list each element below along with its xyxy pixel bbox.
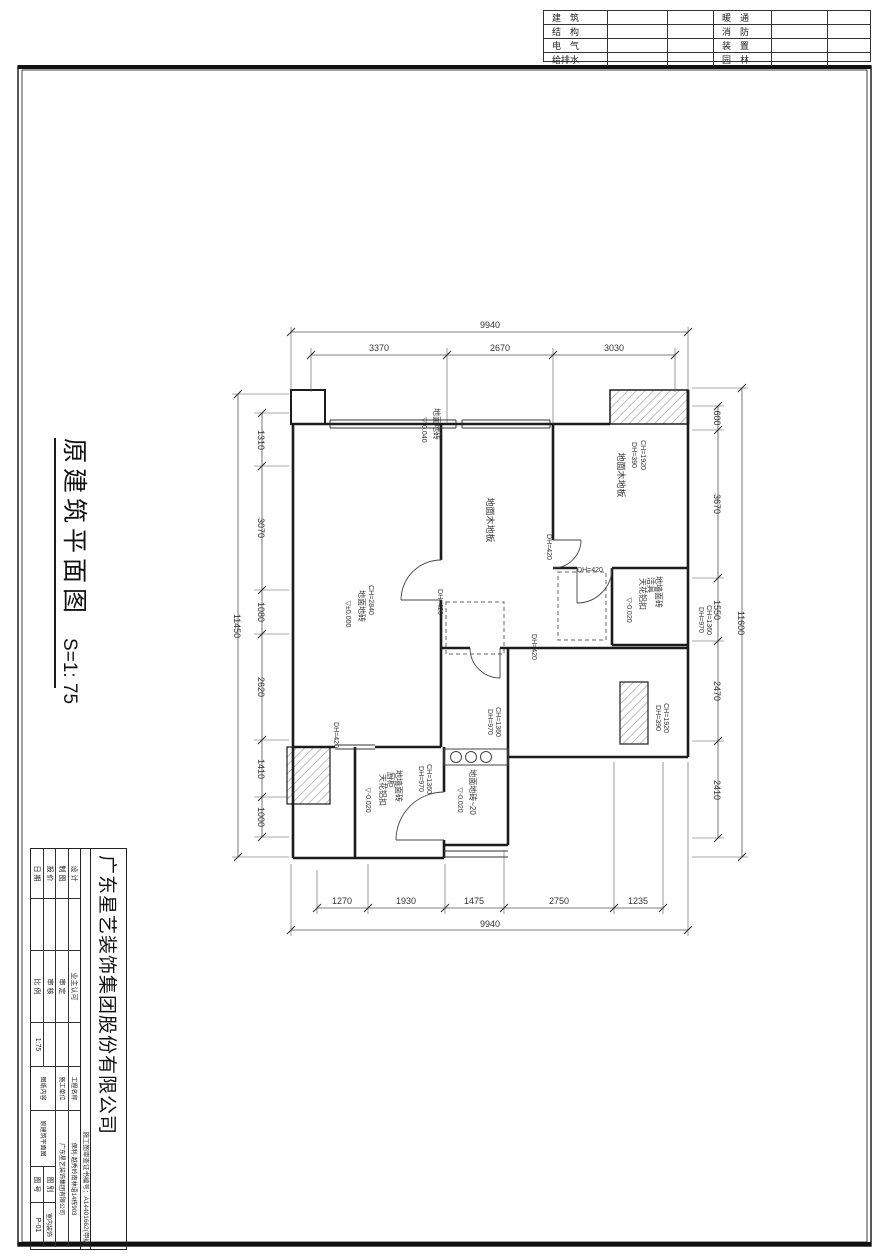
height-note: DH=420 [436, 589, 443, 615]
height-note: DH=970 [417, 766, 424, 792]
height-note: DH=420 [545, 534, 552, 560]
room-finish-label: 天花铝扣 [378, 774, 388, 806]
height-note: DH=420 [530, 634, 537, 660]
height-note: DH=420 [332, 722, 339, 748]
owner-approval-cell [68, 1023, 80, 1067]
room-finish-label: 地面地砖~20 [468, 769, 478, 815]
dim-top-total: 9940 [480, 320, 500, 330]
dashed-outlines [446, 572, 606, 654]
quote-signature-cell [43, 899, 55, 951]
dim-top: 2670 [490, 343, 510, 353]
sheet-title: 原建筑平面图 S=1: 75 [54, 438, 98, 688]
room-finish-label: 天花铝扣 [638, 578, 648, 610]
sheet-border [18, 66, 871, 1246]
discipline-blank-cell [608, 11, 668, 25]
dim-bottom: 1270 [332, 896, 352, 906]
height-note: DH=420 [577, 567, 603, 574]
project-name-value: 保利·越秀岭南林语14栋903 [68, 1111, 80, 1247]
discipline-blank-cell [828, 39, 870, 53]
dim-left: 1000 [256, 807, 266, 827]
stove-burners [444, 749, 508, 765]
height-note: CH=1920 [639, 440, 646, 470]
shaft-hatch [620, 682, 648, 744]
discipline-blank-cell [668, 11, 714, 25]
discipline-label: 结 构 [544, 25, 608, 39]
dim-left: 1310 [256, 430, 266, 450]
dim-right: 1550 [712, 600, 722, 620]
level-mark: ▽-0.020 [625, 597, 632, 622]
discipline-blank-cell [828, 53, 870, 66]
dim-right: 2470 [712, 681, 722, 701]
height-note: DH=390 [630, 442, 637, 468]
builder-value: 广东星艺装饰集团有限公司 [56, 1111, 68, 1247]
balcony-hatch [610, 390, 688, 424]
scale-label: 比 例 [31, 951, 43, 1023]
dim-right: 2410 [712, 780, 722, 800]
dim-top: 3370 [369, 343, 389, 353]
design-signature-cell [68, 899, 80, 951]
room-finish-label: 地面木地板 [616, 452, 627, 497]
scale-value: 1:75 [31, 1023, 43, 1067]
dim-left: 3070 [256, 518, 266, 538]
height-note: CH=1360 [425, 764, 432, 794]
dim-bottom: 1475 [464, 896, 484, 906]
sheet-title-text: 原建筑平面图 [58, 438, 94, 618]
owner-approval-label: 业主认可 [68, 951, 80, 1023]
dim-top: 3030 [604, 343, 624, 353]
height-note: CH=1360 [705, 605, 712, 635]
discipline-label: 暖 通 [714, 11, 772, 25]
date-label: 日 期 [31, 849, 43, 899]
dim-left: 1410 [256, 759, 266, 779]
room-finish-label: 地面木地板 [485, 497, 496, 542]
dim-bottom: 1930 [396, 896, 416, 906]
discipline-table: 建 筑 暖 通 结 构 消 防 电 气 装 置 给排水 园 [543, 10, 871, 62]
height-note: CH=1920 [662, 703, 669, 733]
company-band: 广东星艺装饰集团股份有限公司 施工图审查证书编号：A14401662(甲级) [90, 849, 126, 1249]
company-name: 广东星艺装饰集团股份有限公司 [95, 855, 122, 1135]
discipline-label: 装 置 [714, 39, 772, 53]
discipline-blank-cell [608, 53, 668, 66]
drawing-sheet: 建 筑 暖 通 结 构 消 防 电 气 装 置 给排水 园 [0, 0, 878, 1254]
discipline-label: 给排水 [544, 53, 608, 66]
discipline-label: 消 防 [714, 25, 772, 39]
dim-right-total: 11600 [736, 611, 746, 635]
title-block: 广东星艺装饰集团股份有限公司 施工图审查证书编号：A14401662(甲级) 设… [30, 848, 127, 1250]
discipline-blank-cell [828, 11, 870, 25]
room-finish-label: 地面地砖 [357, 590, 367, 622]
discipline-row: 电 气 装 置 [544, 39, 870, 53]
dim-bottom-total: 9940 [480, 919, 500, 929]
draft-label: 制 图 [56, 849, 68, 899]
discipline-blank-cell [668, 39, 714, 53]
dim-left: 1080 [256, 602, 266, 622]
dim-bottom: 2750 [549, 896, 569, 906]
discipline-label: 园 林 [714, 53, 772, 66]
discipline-blank-cell [668, 25, 714, 39]
height-note: CH=1360 [494, 707, 501, 737]
floor-plan-canvas: 9940337026703030127019301475275012359940… [0, 0, 878, 1254]
door-arcs [396, 540, 612, 840]
discipline-blank-cell [828, 25, 870, 39]
drawing-number-label: 图 号 [31, 1167, 43, 1203]
category-value: 室内装饰 [43, 1203, 55, 1247]
level-mark: ▽-0.020 [364, 787, 371, 812]
discipline-blank-cell [668, 53, 714, 66]
discipline-blank-cell [772, 11, 828, 25]
height-note: CH=2840 [367, 585, 374, 615]
height-note: DH=390 [654, 705, 661, 731]
discipline-blank-cell [608, 25, 668, 39]
dim-left: 2620 [256, 677, 266, 697]
discipline-label: 建 筑 [544, 11, 608, 25]
drawing-number-value: P-01 [31, 1203, 43, 1247]
review-signature-cell [43, 1023, 55, 1067]
discipline-row: 建 筑 暖 通 [544, 11, 870, 25]
level-mark: ▽-0.020 [456, 787, 463, 812]
discipline-label: 电 气 [544, 39, 608, 53]
dim-bottom: 1235 [628, 896, 648, 906]
level-mark: ▽-0.040 [420, 417, 427, 442]
content-value: 原建筑平面图 [31, 1111, 56, 1167]
discipline-blank-cell [608, 39, 668, 53]
draft-signature-cell [56, 899, 68, 951]
discipline-blank-cell [772, 25, 828, 39]
builder-label: 施工单位 [56, 1067, 68, 1111]
date-value-cell [31, 899, 43, 951]
discipline-row: 结 构 消 防 [544, 25, 870, 39]
height-note: DH=970 [486, 709, 493, 735]
height-note: DH=970 [697, 607, 704, 633]
quote-label: 报 价 [43, 849, 55, 899]
discipline-row: 给排水 园 林 [544, 53, 870, 66]
content-label: 图纸内容 [31, 1067, 56, 1111]
column-block [291, 390, 325, 424]
discipline-blank-cell [772, 39, 828, 53]
sheet-title-scale: S=1: 75 [58, 638, 80, 704]
dim-left-total: 11450 [232, 614, 242, 638]
approve-label: 审 定 [56, 951, 68, 1023]
room-finish-label: 地面地砖 [432, 408, 442, 440]
design-label: 设 计 [68, 849, 80, 899]
title-block-table: 设 计 业主认可 工程名称 保利·越秀岭南林语14栋903 制 图 审 定 施工… [31, 849, 81, 1249]
level-mark: ▽±0.000 [344, 601, 351, 628]
dim-right: 3670 [712, 494, 722, 514]
project-name-label: 工程名称 [68, 1067, 80, 1111]
approve-signature-cell [56, 1023, 68, 1067]
dim-right: 600 [712, 410, 722, 425]
discipline-blank-cell [772, 53, 828, 66]
certificate-number: 施工图审查证书编号：A14401662(甲级) [82, 1131, 92, 1247]
category-label: 图 别 [43, 1167, 55, 1203]
review-label: 审 核 [43, 951, 55, 1023]
